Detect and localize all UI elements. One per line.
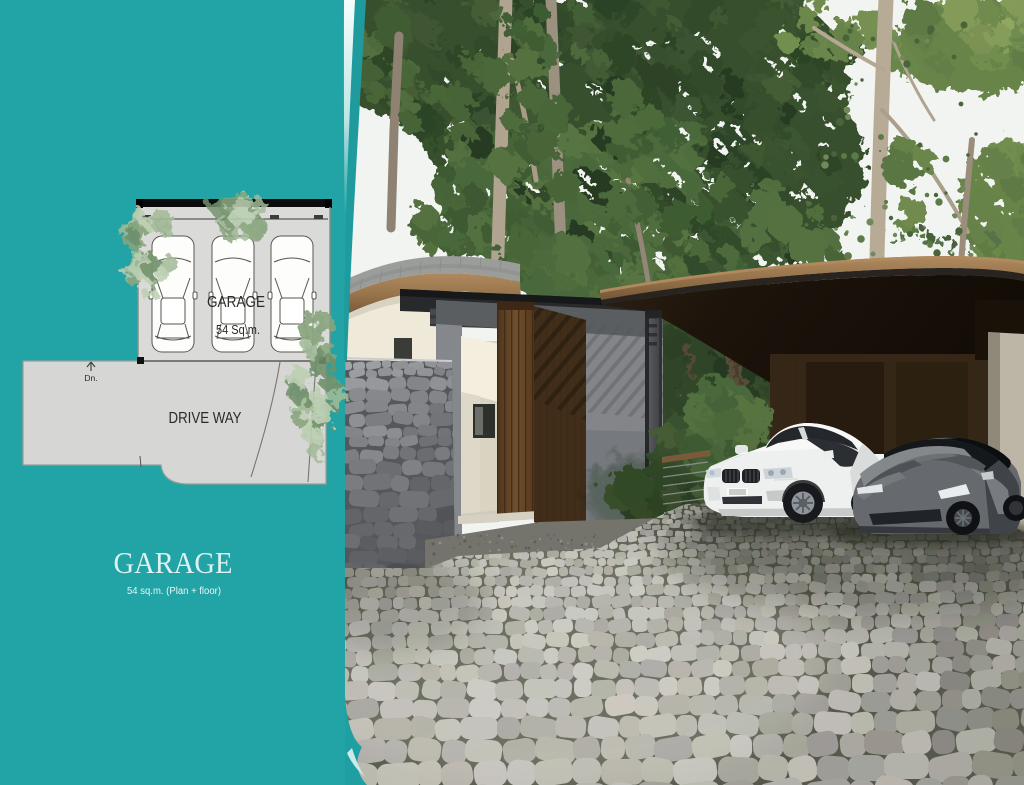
svg-text:54 sq.m. (Plan + floor): 54 sq.m. (Plan + floor) — [127, 586, 221, 597]
svg-text:GARAGE: GARAGE — [207, 294, 265, 311]
svg-text:Dn.: Dn. — [84, 373, 97, 383]
svg-text:54 Sq.m.: 54 Sq.m. — [216, 322, 260, 337]
svg-text:DRIVE WAY: DRIVE WAY — [169, 410, 242, 427]
svg-text:GARAGE: GARAGE — [114, 545, 233, 580]
